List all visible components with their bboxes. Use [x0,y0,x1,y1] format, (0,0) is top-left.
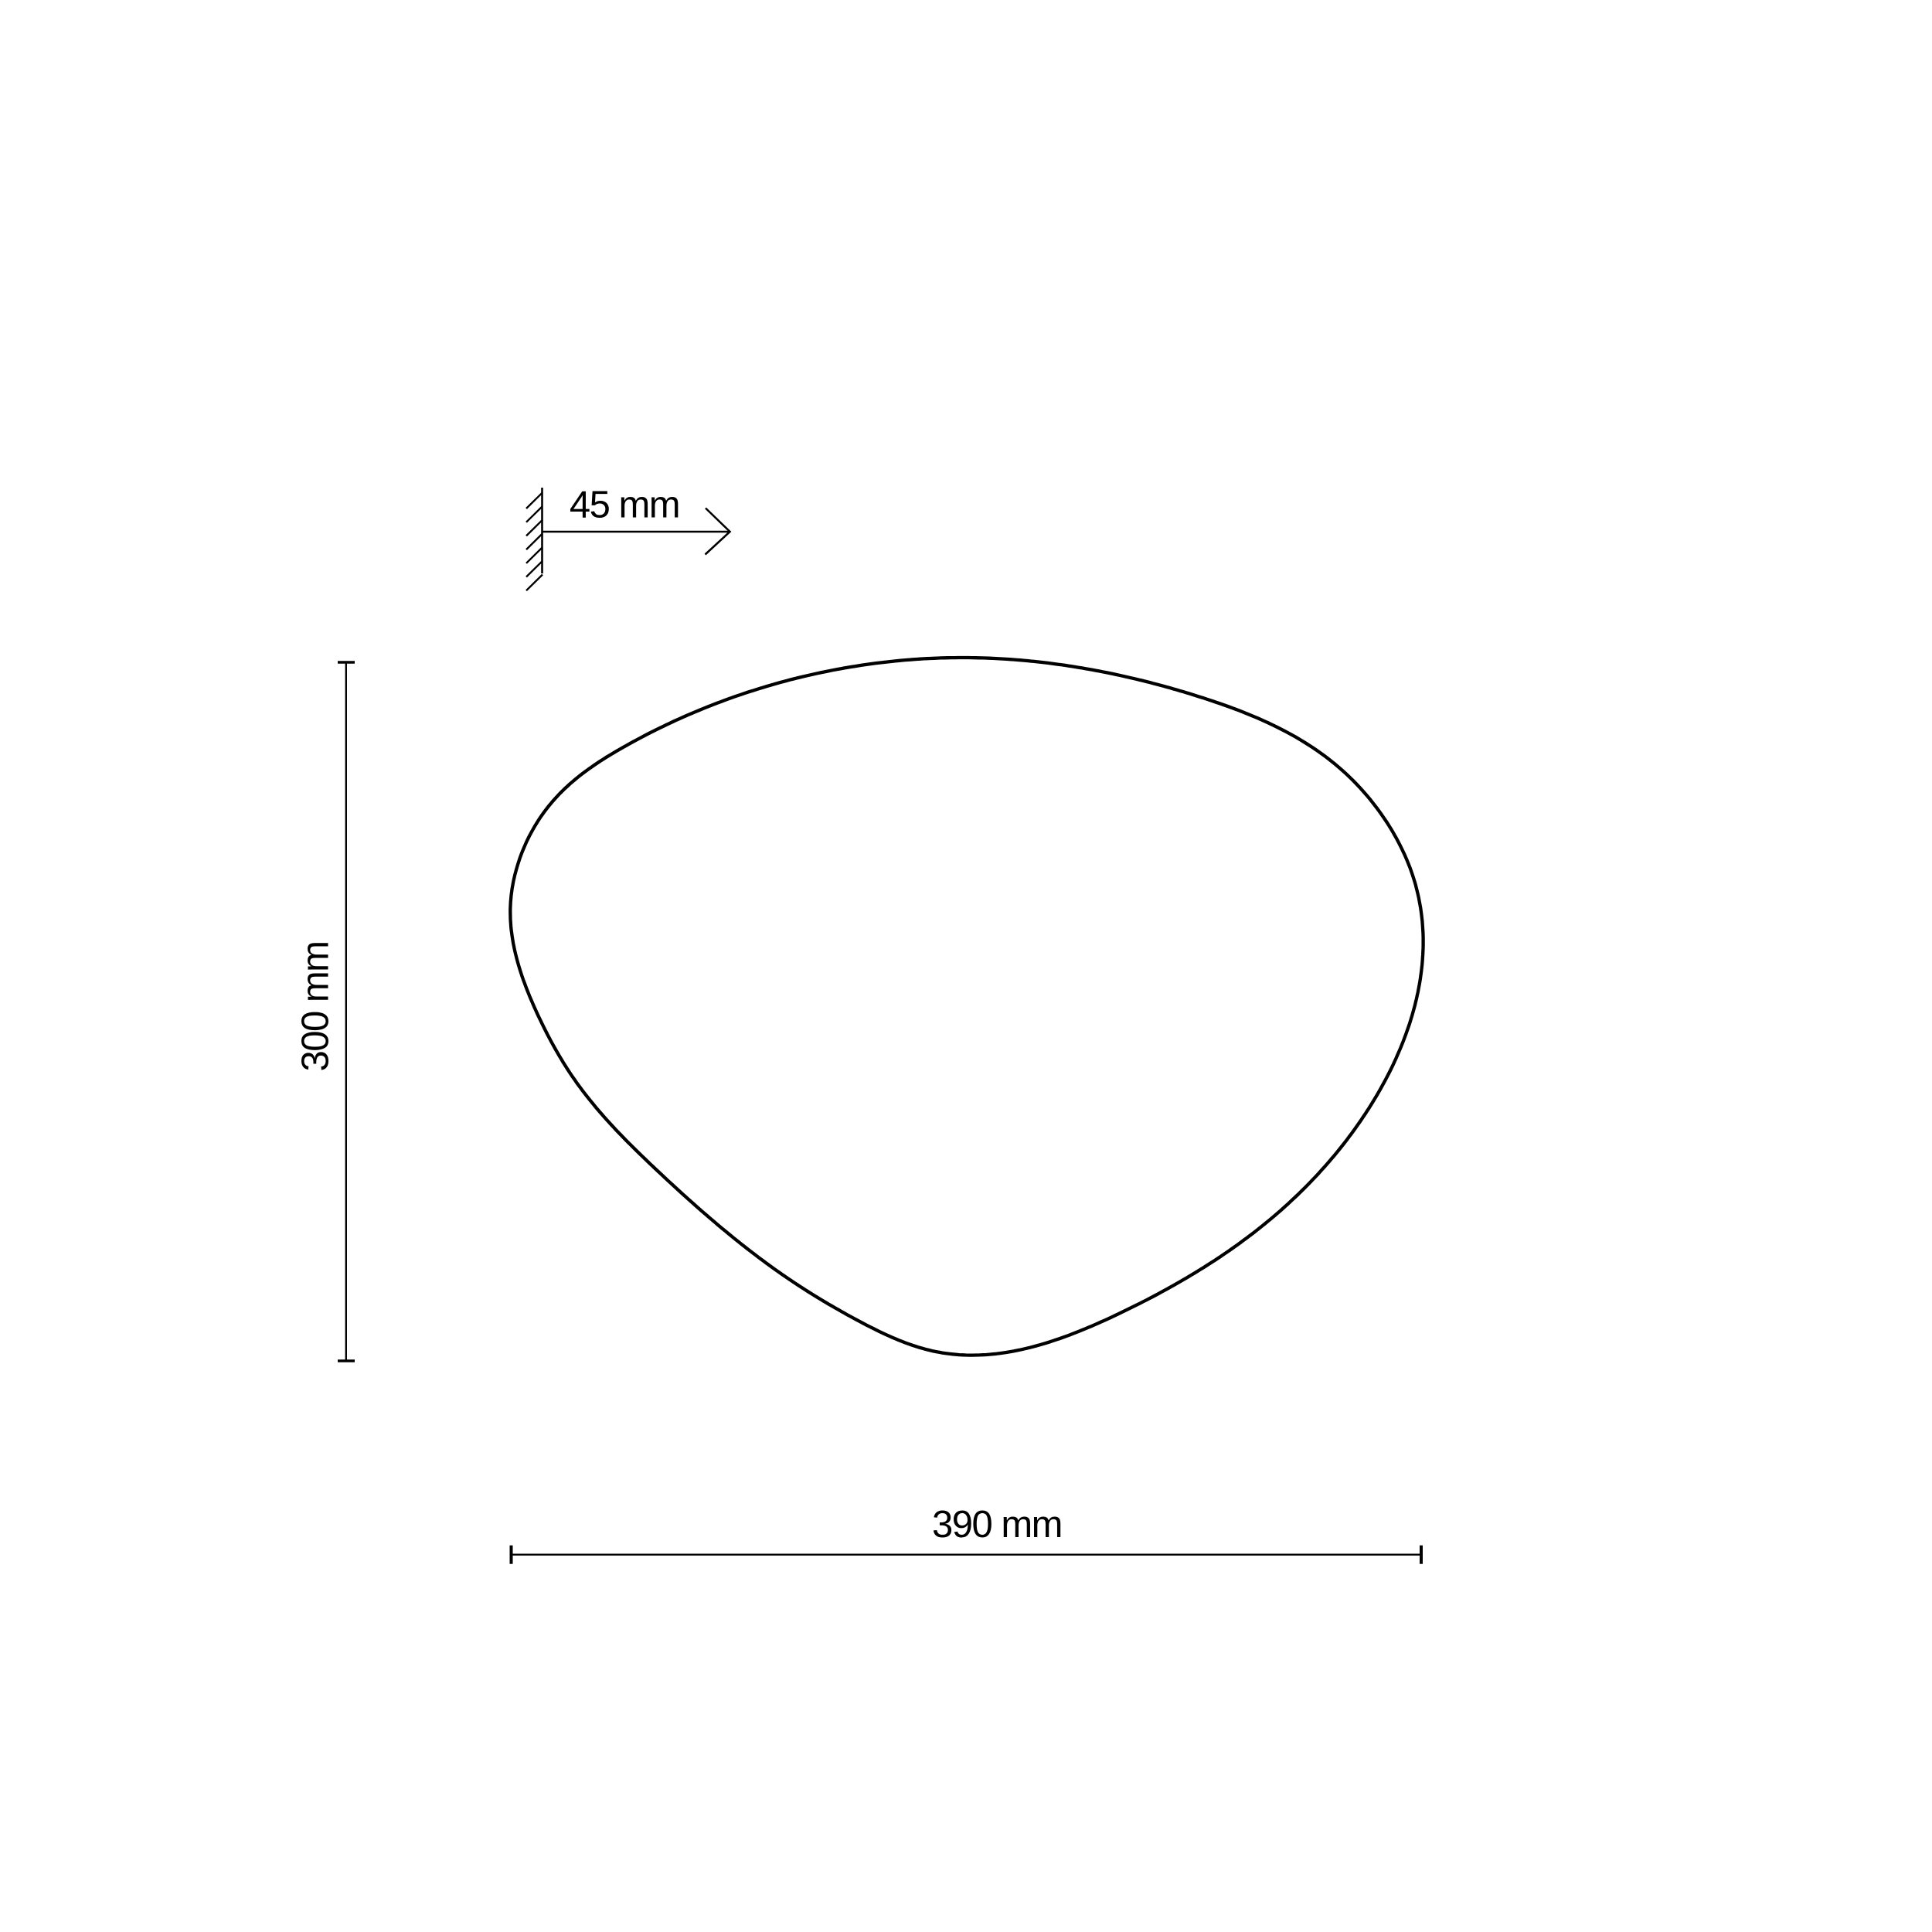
svg-text:390 mm: 390 mm [932,1504,1062,1546]
svg-text:300 mm: 300 mm [295,941,337,1071]
svg-text:45 mm: 45 mm [570,485,679,526]
